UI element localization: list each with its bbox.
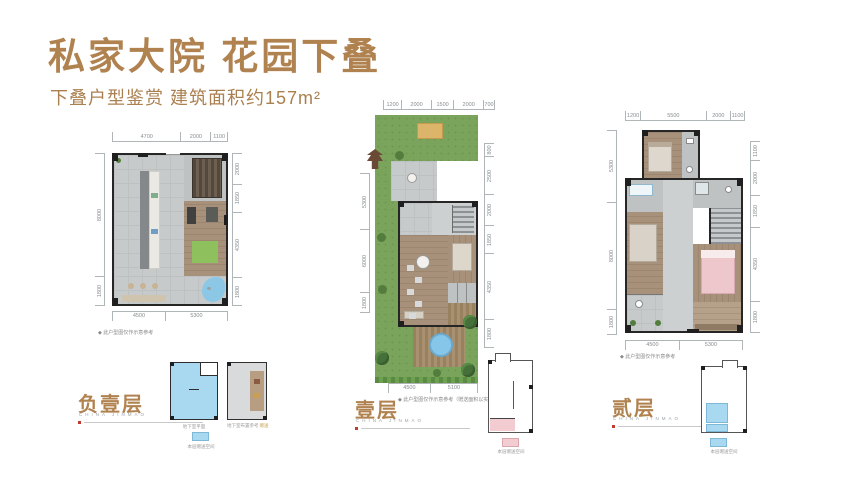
inset-pink-area [490,418,515,431]
inset-caption: 地下室布置参考 [227,423,257,429]
sink-icon [686,138,694,144]
wall-pier [138,153,148,157]
stepping-stone [415,277,422,283]
bathroom [448,283,476,303]
wall-pier [743,366,747,370]
gym-equipment-icon [206,207,218,222]
legend-caption: 本层赠送空间 [488,449,534,455]
dim-label: 1800 [97,285,103,297]
dim-segment: 6000 [360,229,370,292]
dim-segment: 4350 [484,253,494,319]
dim-segment: 8000 [95,153,105,276]
red-dot [612,425,615,428]
dims-left: 530080001800 [607,130,617,335]
dims-bottom: 45005300 [625,340,743,350]
label-rule [355,427,470,430]
tree-icon [463,315,477,329]
rug [192,241,218,263]
dim-label: 4500 [389,385,430,391]
toilet-icon [725,186,732,193]
dim-label: 2000 [235,163,241,175]
sandpit [417,123,443,139]
dim-label: 2000 [181,134,210,140]
bed-icon [629,224,657,262]
shrub-icon [395,151,404,160]
dim-segment: 2500 [484,156,494,194]
wall-pier [488,360,492,364]
wall-pier [224,215,228,225]
dims-bottom: 45005300 [112,311,228,321]
dim-label: 1850 [487,234,493,246]
kitchen-island [140,171,149,269]
plant-icon [655,320,661,326]
dim-segment: 1100 [730,111,745,121]
dim-segment: 1800 [232,277,242,306]
wall-pier [701,366,705,370]
tree-icon [461,363,475,377]
wall-pier [743,429,747,433]
dim-segment: 1850 [484,225,494,254]
stool-icon [152,283,158,289]
dim-label: 5100 [431,385,477,391]
dim-label: 1200 [626,113,640,119]
rule-line [361,428,470,429]
wall-pier [263,416,267,420]
page-title: 私家大院 花园下叠 [48,26,381,80]
wall-pier [642,130,648,136]
corridor [663,180,693,331]
legend-caption: 本层赠送空间 [698,449,750,455]
dim-segment: 5100 [430,383,478,393]
dims-bottom: 45005100 [388,383,478,393]
wall-pier [170,362,174,366]
inset-notch [495,353,511,362]
legend-caption: 本层赠送空间 [178,444,224,450]
hedge [375,377,478,383]
tableware-icon [151,229,158,234]
dim-label: 4350 [753,258,759,270]
first-floor-body [375,115,478,383]
inset-blue-area [706,403,728,423]
dim-segment: 1500 [431,100,453,110]
wall-pier [222,153,228,161]
dim-segment: 1100 [750,141,760,160]
tableware-icon [151,193,158,198]
dims-top: 1200550020001100 [625,111,745,121]
dim-label: 4350 [487,281,493,293]
dim-label: 1800 [362,297,368,309]
dim-segment: 1100 [210,132,228,142]
red-dot [78,421,81,424]
rule-line [84,422,203,423]
dim-segment: 2000 [232,153,242,184]
wall-pier [472,201,478,207]
dim-label: 1850 [235,192,241,204]
pillows [701,250,735,258]
legend-swatch-pink [502,438,519,447]
dim-label: 2500 [487,169,493,181]
stepping-stone [407,289,414,295]
dim-label: 8000 [97,209,103,221]
desk-icon [695,324,739,330]
dim-segment: 1800 [360,292,370,313]
inset-furniture [254,393,260,398]
dim-label: 4500 [626,342,679,348]
staircase [709,208,741,244]
partition [466,283,467,303]
poster: 私家大院 花园下叠 下叠户型鉴赏 建筑面积约157m² 470020001100… [0,0,850,480]
inset-notch [722,360,738,368]
inset-first-highlight [488,360,533,433]
shrub-icon [377,233,386,242]
dim-label: 4350 [235,239,241,251]
dim-label: 6000 [362,255,368,267]
staircase [192,158,222,198]
dim-label: 1800 [753,311,759,323]
wall-pier [625,178,631,186]
tree-icon [375,351,389,365]
pool [429,333,453,357]
legend-swatch-blue [192,432,209,441]
dim-label: 2000 [487,204,493,216]
dims-right: 2000185043501800 [232,153,242,306]
page-subtitle: 下叠户型鉴赏 建筑面积约157m² [50,84,321,110]
inset-basement-highlight [170,362,218,420]
inset-furniture [254,379,260,384]
wall-pier [112,153,118,161]
dim-label: 1800 [235,286,241,298]
floorplan-basement: 470020001100 80001800 2000185043501800 4… [85,123,250,363]
wall-pier [625,325,631,333]
wall-pier [529,429,533,433]
stool-icon [128,283,134,289]
kitchen [400,203,432,235]
wall-pier [529,385,533,389]
basement-floor-body [112,153,228,306]
dim-segment: 5300 [165,311,228,321]
staircase [452,205,474,233]
brand-line: CHINA JINMAO [356,418,424,423]
patio-table-icon [407,173,417,183]
dim-segment: 2000 [453,100,483,110]
brand-line: CHINA JINMAO [613,416,681,421]
inset-basement-reference [227,362,267,420]
stepping-stone [407,265,414,271]
wall-pier [694,130,700,136]
toilet-icon [686,166,693,173]
dim-label: 1850 [753,205,759,217]
dims-top: 470020001100 [112,132,228,142]
cabinet [122,295,166,302]
inset-second-highlight [701,366,747,433]
dim-segment: 1800 [484,319,494,348]
inset-caption: 地下室平面 [168,424,220,430]
wall-pier [398,201,404,207]
dim-label: 5300 [166,313,227,319]
dim-label: 8000 [609,250,615,262]
dim-label: 5300 [609,160,615,172]
stepping-stone [409,313,416,319]
dims-top: 1200200015002000700 [383,100,495,110]
dim-label: 4500 [113,313,165,319]
inset-furniture [250,371,264,411]
dim-label: 1500 [432,102,453,108]
wall-pier [214,416,218,420]
dims-left: 530060001800 [360,173,370,313]
legend-swatch-blue [710,438,727,447]
wall-pier [112,298,118,306]
dim-segment: 1200 [625,111,640,121]
dim-segment: 2000 [401,100,431,110]
toilet-icon [635,300,643,308]
dims-left: 80001800 [95,153,105,306]
dining-counter [149,171,160,269]
stone-icon [207,287,211,290]
stool-icon [140,283,146,289]
inset-notch [200,363,217,376]
dim-segment: 1800 [750,301,760,333]
dim-segment: 1800 [95,276,105,306]
disclaimer-note: ◆ 此户型图仅作示意参考 [98,329,153,336]
wall-pier [737,325,743,333]
red-dot [355,427,358,430]
shrub-icon [433,369,441,377]
wall-pier [227,362,231,366]
wall-pier [170,416,174,420]
dim-label: 2000 [402,102,431,108]
dim-segment: 4700 [112,132,180,142]
wall-pier [222,298,228,306]
treadmill-icon [187,207,196,224]
dim-segment: 5500 [640,111,706,121]
house-block [398,201,478,327]
dim-segment: 800 [484,143,494,156]
bathtub-icon [629,184,653,196]
dim-segment: 4500 [112,311,165,321]
inset-wall [189,389,199,390]
dim-segment: 5300 [360,173,370,229]
dim-label: 1200 [384,102,401,108]
dim-label: 5300 [680,342,742,348]
stepping-stone [415,301,422,307]
dim-label: 5500 [641,113,706,119]
bed-icon [452,243,472,271]
dim-label: 800 [487,145,493,154]
dim-segment: 4500 [388,383,430,393]
second-floor-body [625,178,743,333]
wall-pier [687,329,699,333]
master-bedroom-block [642,130,700,182]
inset-wall [513,381,514,409]
dim-segment: 5300 [679,340,743,350]
dim-segment: 1800 [607,309,617,335]
dim-label: 1800 [487,327,493,339]
dim-label: 1100 [731,113,744,119]
dim-segment: 1850 [750,195,760,227]
dim-label: 1100 [211,134,227,140]
dim-segment: 4350 [232,212,242,277]
dim-segment: 4500 [625,340,679,350]
wall-pier [398,321,404,327]
door-opening [166,153,180,155]
shower-icon [695,182,709,195]
dim-label: 2000 [454,102,483,108]
dining-table-icon [416,255,430,269]
dim-segment: 1200 [383,100,401,110]
dim-segment: 8000 [607,202,617,309]
disclaimer-note: ◆ 此户型图仅作示意参考 [620,353,675,360]
dims-right: 11002000185043501800 [750,141,760,333]
shrub-icon [378,285,387,294]
dim-label: 1100 [753,145,759,157]
dim-segment: 4350 [750,227,760,301]
dim-segment: 2000 [706,111,730,121]
partition [457,283,458,303]
inset-blue-area [706,424,728,432]
headboard [648,142,672,147]
dim-segment: 2000 [484,194,494,225]
dim-label: 2000 [707,113,730,119]
dim-label: 5300 [362,195,368,207]
dim-segment: 2000 [750,160,760,195]
brand-line: CHINA JINMAO [79,412,147,417]
dim-label: 1800 [609,316,615,328]
dim-label: 4700 [113,134,180,140]
wall-pier [737,178,743,186]
dim-segment: 2000 [180,132,210,142]
dim-segment: 700 [483,100,495,110]
dim-segment: 5300 [607,130,617,202]
dims-right: 80025002000185043501800 [484,143,494,348]
inset-tag: 赠送 [258,423,270,429]
dim-label: 2000 [753,172,759,184]
dim-segment: 1850 [232,184,242,212]
dim-label: 700 [484,102,494,108]
